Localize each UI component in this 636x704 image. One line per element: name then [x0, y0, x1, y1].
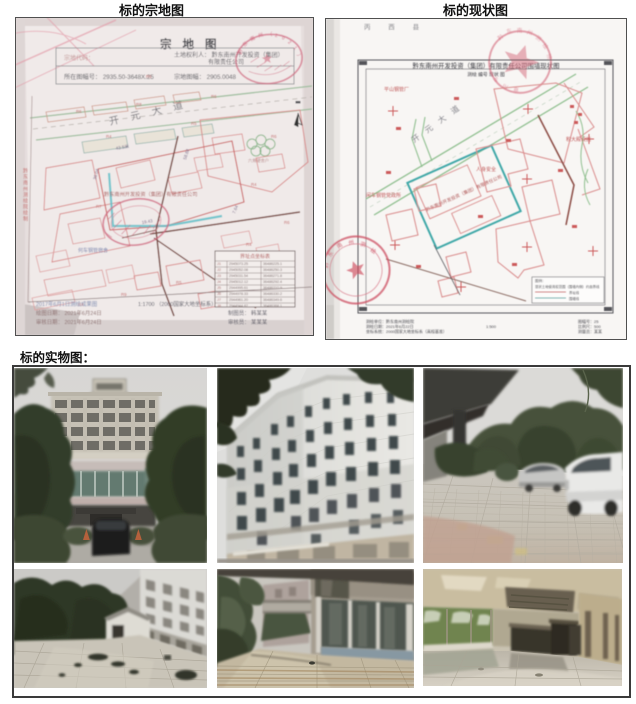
svg-text:积大殿设施: 积大殿设施 — [566, 136, 591, 143]
svg-text:绘图日期： 2021年6月24日: 绘图日期： 2021年6月24日 — [36, 309, 102, 317]
svg-text:J2: J2 — [217, 268, 221, 272]
svg-text:何车钢管宿舍: 何车钢管宿舍 — [78, 247, 108, 254]
svg-text:2945012.12: 2945012.12 — [229, 280, 248, 284]
svg-text:2944944.87: 2944944.87 — [229, 304, 248, 308]
svg-text:R5: R5 — [191, 121, 197, 126]
svg-text:闲车钢管党政所: 闲车钢管党政所 — [366, 192, 401, 199]
svg-text:南: 南 — [517, 26, 523, 34]
svg-text:宗地图幅： 2905.0048: 宗地图幅： 2905.0048 — [174, 73, 236, 81]
svg-text:黔东南州开发投资（集团）有限责任公司: 黔东南州开发投资（集团）有限责任公司 — [104, 190, 197, 198]
svg-text:36486349.6: 36486349.6 — [263, 298, 282, 302]
svg-text:人身安全: 人身安全 — [476, 166, 496, 173]
svg-text:1:500: 1:500 — [486, 324, 497, 329]
svg-text:2944995.61: 2944995.61 — [229, 286, 248, 290]
svg-text:宗地图: 宗地图 — [160, 37, 228, 51]
svg-text:R6: R6 — [271, 134, 277, 139]
svg-text:2944961.20: 2944961.20 — [229, 298, 248, 302]
svg-text:平山钢管厂: 平山钢管厂 — [384, 86, 409, 93]
svg-text:R5: R5 — [146, 74, 152, 79]
svg-text:J5: J5 — [217, 286, 221, 290]
svg-text:R8: R8 — [136, 102, 142, 107]
svg-text:R4: R4 — [246, 242, 252, 247]
svg-text:审核日期： 2021年6月24日: 审核日期： 2021年6月24日 — [36, 318, 102, 326]
svg-text:R6: R6 — [284, 220, 290, 225]
svg-text:2944978.33: 2944978.33 — [229, 292, 248, 296]
svg-text:审核员： 某某某: 审核员： 某某某 — [228, 318, 268, 326]
svg-text:2945052.08: 2945052.08 — [229, 268, 248, 272]
svg-text:J7: J7 — [217, 298, 221, 302]
svg-text:制图员： 韩某某: 制图员： 韩某某 — [228, 309, 268, 317]
svg-text:36486271.8: 36486271.8 — [263, 274, 282, 278]
svg-text:R7: R7 — [96, 204, 102, 209]
svg-text:测量员：某某: 测量员：某某 — [578, 328, 602, 334]
svg-text:有限责任公司: 有限责任公司 — [208, 58, 244, 66]
svg-text:围墙线: 围墙线 — [569, 296, 580, 301]
svg-text:图例：: 图例： — [535, 278, 546, 283]
svg-text:R6: R6 — [211, 94, 217, 99]
svg-text:J8: J8 — [217, 304, 221, 308]
svg-text:36486330.2: 36486330.2 — [263, 292, 282, 296]
svg-text:R6: R6 — [76, 109, 82, 114]
svg-text:36486250.3: 36486250.3 — [263, 268, 282, 272]
svg-text:36486225.1: 36486225.1 — [263, 262, 282, 266]
svg-text:R4: R4 — [251, 182, 257, 187]
svg-text:丙 西 县: 丙 西 县 — [364, 23, 427, 31]
svg-text:36486292.4: 36486292.4 — [263, 280, 282, 284]
svg-text:J3: J3 — [217, 274, 221, 278]
svg-text:六角硬舍户: 六角硬舍户 — [248, 157, 269, 164]
svg-text:J4: J4 — [217, 280, 221, 284]
svg-text:现状土地使用权范围（围墙内侧）约亩界线: 现状土地使用权范围（围墙内侧）约亩界线 — [535, 284, 600, 289]
svg-text:J1: J1 — [217, 262, 221, 266]
svg-text:坐标系统：2000国家大地坐标系（高程基准）: 坐标系统：2000国家大地坐标系（高程基准） — [366, 328, 447, 334]
svg-text:界址点坐标表: 界址点坐标表 — [240, 253, 270, 260]
svg-text:界址线: 界址线 — [569, 290, 580, 295]
svg-text:R5: R5 — [176, 280, 182, 285]
svg-text:J6: J6 — [217, 292, 221, 296]
svg-text:2945031.54: 2945031.54 — [229, 274, 248, 278]
svg-text:宗地代码：: 宗地代码： — [64, 54, 94, 62]
svg-text:1:1700 （2000国家大地坐标系）: 1:1700 （2000国家大地坐标系） — [138, 300, 217, 308]
svg-text:所在图幅号： 2935.50-3648X.25: 所在图幅号： 2935.50-3648X.25 — [64, 73, 154, 81]
svg-text:R4: R4 — [106, 134, 112, 139]
svg-text:R9: R9 — [121, 292, 127, 297]
svg-text:（: （ — [267, 32, 272, 38]
svg-text:36486368.1: 36486368.1 — [263, 304, 282, 308]
svg-text:2945073.25: 2945073.25 — [229, 262, 248, 266]
svg-text:2017年6月1日测绘成果图: 2017年6月1日测绘成果图 — [36, 300, 97, 308]
svg-text:黔东南州测绘院绘制: 黔东南州测绘院绘制 — [22, 167, 28, 222]
